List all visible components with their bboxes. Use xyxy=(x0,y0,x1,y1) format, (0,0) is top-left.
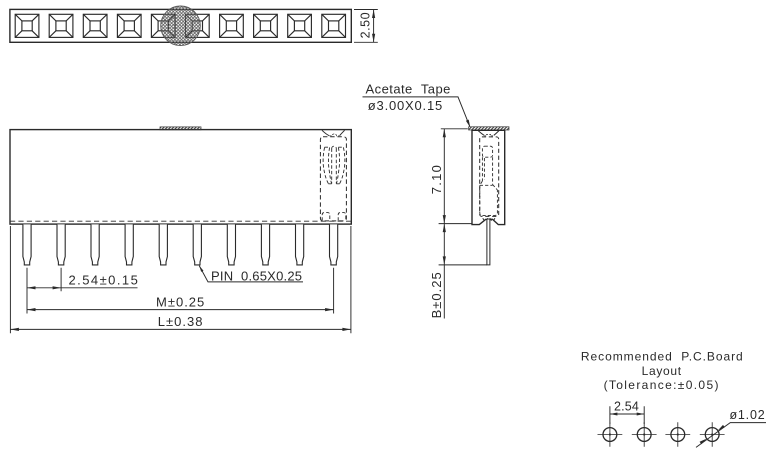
svg-text:2.54: 2.54 xyxy=(614,399,639,413)
svg-text:Recommended P.C.Board: Recommended P.C.Board xyxy=(581,350,744,364)
svg-text:ø3.00X0.15: ø3.00X0.15 xyxy=(368,98,443,113)
svg-text:ø1.02: ø1.02 xyxy=(730,408,766,422)
svg-text:Acetate Tape: Acetate Tape xyxy=(366,81,451,96)
svg-text:PIN 0.65X0.25: PIN 0.65X0.25 xyxy=(211,269,302,284)
svg-text:2.50: 2.50 xyxy=(358,12,372,39)
svg-text:(Tolerance:±0.05): (Tolerance:±0.05) xyxy=(604,378,720,392)
svg-text:B±0.25: B±0.25 xyxy=(429,271,444,318)
svg-text:2.54±0.15: 2.54±0.15 xyxy=(69,273,140,288)
svg-text:M±0.25: M±0.25 xyxy=(156,294,205,309)
svg-text:L±0.38: L±0.38 xyxy=(158,314,204,329)
svg-text:Layout: Layout xyxy=(642,364,682,378)
svg-text:7.10: 7.10 xyxy=(429,164,444,195)
